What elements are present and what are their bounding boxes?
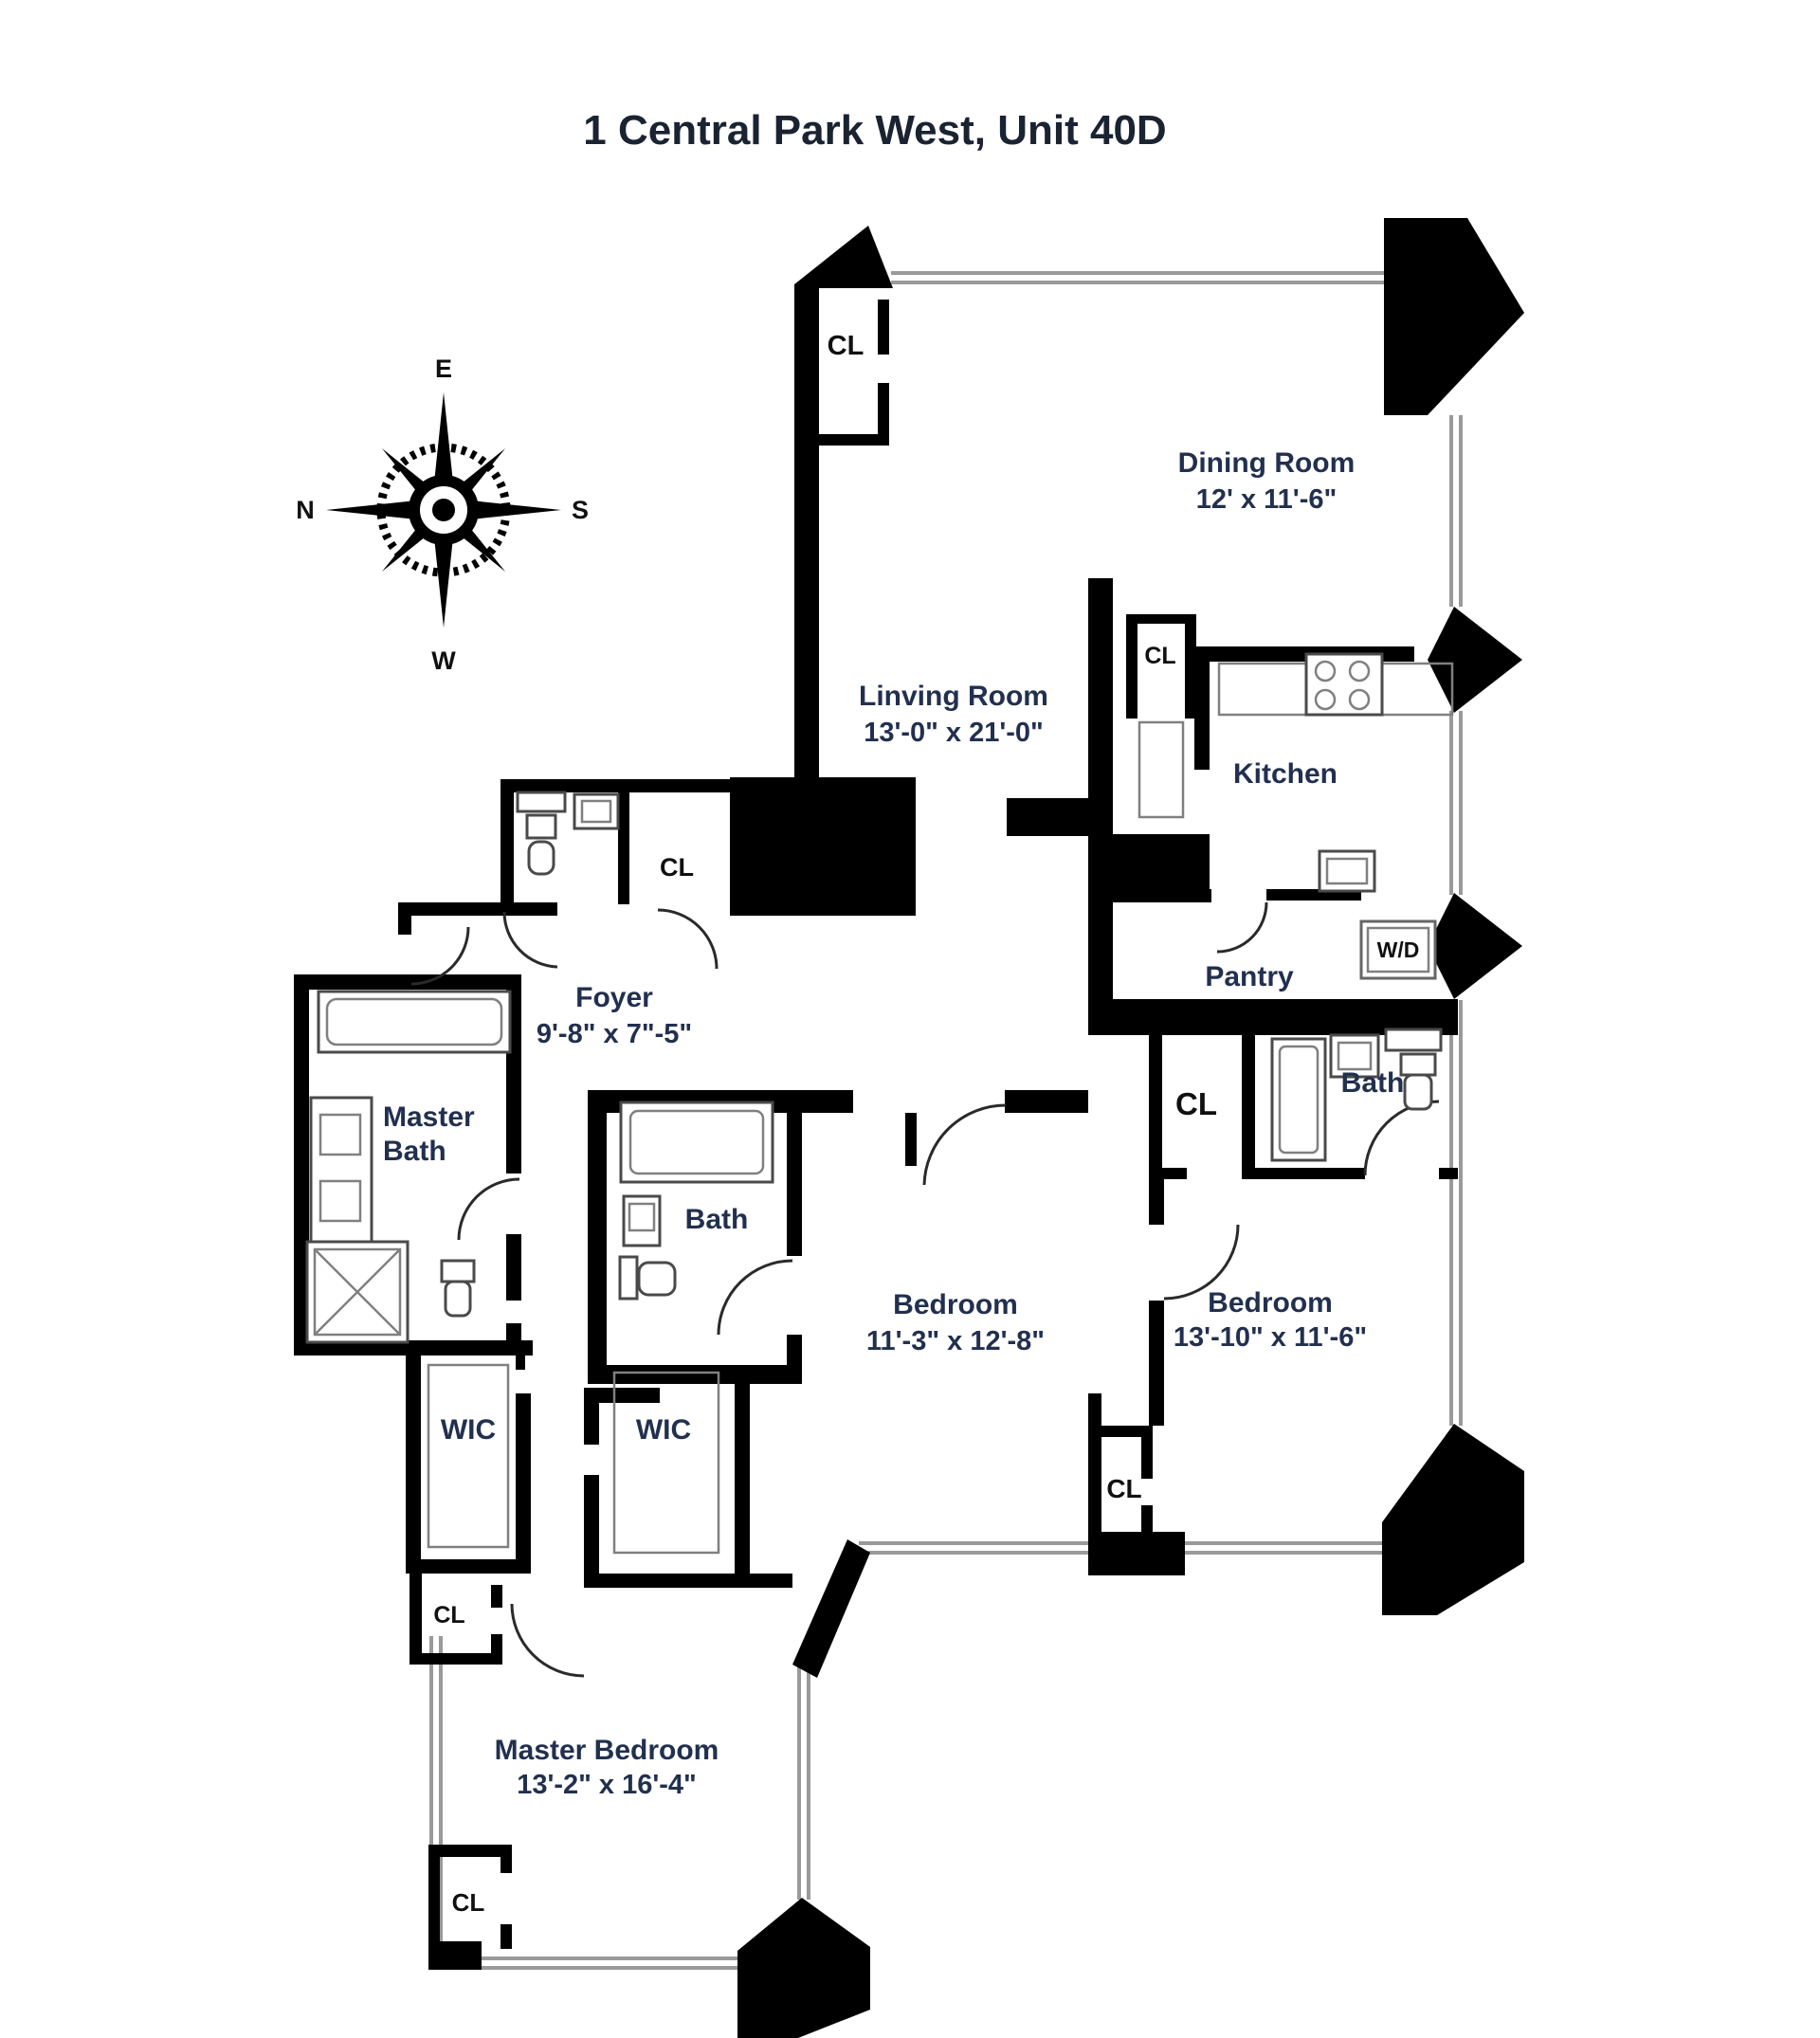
bay-point-right-upper [1428, 607, 1522, 713]
living-room-dims: 13'-0" x 21'-0" [864, 718, 1044, 748]
middle-bath-label: Bath [685, 1204, 749, 1235]
middle-bath-fixtures [620, 1102, 773, 1299]
bathtub-icon [621, 1102, 773, 1182]
powder-room-fixtures [518, 792, 618, 874]
master-bedroom-label: Master Bedroom [495, 1735, 719, 1766]
bay-corner-top-right [1384, 218, 1524, 415]
dining-room-label: Dining Room [1178, 447, 1356, 479]
master-bath-label-line2: Bath [383, 1136, 446, 1167]
pantry-label: Pantry [1205, 961, 1294, 992]
master-bedroom-dims: 13'-2" x 16'-4" [517, 1770, 697, 1800]
compass-rose: E S W N [296, 355, 589, 675]
foyer-dims: 9'-8" x 7"-5" [537, 1019, 692, 1049]
diagonal-wall-master [792, 1539, 870, 1678]
walls [294, 218, 1524, 2038]
bay-corner-master-bottom [737, 1898, 870, 2038]
wic-right-label: WIC [636, 1414, 691, 1446]
closet-foyer-label: CL [660, 853, 694, 882]
floor-plan-page: 1 Central Park West, Unit 40D E S W N [0, 0, 1820, 2038]
living-room-label: Linving Room [859, 681, 1048, 712]
kitchen-label: Kitchen [1233, 758, 1338, 790]
right-bath-label: Bath [1341, 1067, 1405, 1099]
compass-south-label: S [572, 496, 589, 524]
right-bedroom-label: Bedroom [1208, 1287, 1333, 1319]
closet-living-top-label: CL [828, 331, 864, 361]
compass-north-label: N [296, 496, 315, 524]
dining-room-dims: 12' x 11'-6" [1196, 484, 1337, 515]
master-bath-fixtures [307, 992, 510, 1342]
floor-plan-drawing: 1 Central Park West, Unit 40D E S W N [0, 0, 1820, 2038]
bay-point-right-lower [1428, 893, 1522, 999]
closet-between-bedrooms-label: CL [1106, 1474, 1141, 1503]
washer-dryer-label: W/D [1377, 937, 1420, 962]
wic-left-label: WIC [441, 1414, 496, 1446]
closet-kitchen-label: CL [1144, 643, 1175, 669]
closet-master-bottom-label: CL [452, 1888, 485, 1917]
middle-bedroom-dims: 11'-3" x 12'-8" [866, 1326, 1045, 1356]
closet-hall-label: CL [1175, 1086, 1217, 1121]
closet-master-top-label: CL [433, 1602, 464, 1629]
compass-west-label: W [431, 646, 456, 675]
middle-bedroom-label: Bedroom [893, 1289, 1018, 1320]
master-bath-label-line1: Master [383, 1101, 475, 1133]
bay-corner-bottom-right [1382, 1424, 1524, 1615]
foyer-label: Foyer [575, 982, 653, 1013]
page-title: 1 Central Park West, Unit 40D [583, 107, 1166, 154]
compass-east-label: E [435, 355, 452, 383]
right-bedroom-dims: 13'-10" x 11'-6" [1174, 1322, 1367, 1353]
